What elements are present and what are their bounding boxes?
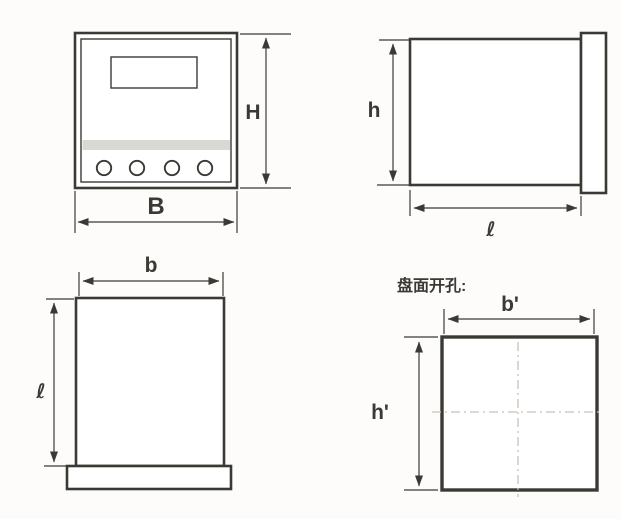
front-panel-band [83,140,231,150]
rear-view: b ℓ [35,254,231,489]
panel-button-3 [165,161,179,175]
panel-button-4 [198,161,212,175]
dim-label-l-rear: ℓ [35,379,45,403]
panel-button-1 [97,161,111,175]
dim-label-bprime: b' [501,293,519,316]
side-view: h ℓ [368,33,606,241]
dim-label-H: H [245,101,260,124]
dim-label-h: h [368,99,381,122]
panel-button-2 [130,161,144,175]
panel-meter-dimension-diagram: H B h ℓ b ℓ 盘面开孔: [0,0,621,519]
dim-label-hprime: h' [371,401,389,424]
side-view-body [410,39,581,185]
dim-label-b: b [145,254,158,277]
cutout-view: 盘面开孔: b' h' [371,276,603,497]
rear-view-flange [67,466,231,489]
side-view-flange [581,33,606,193]
dim-label-l-side: ℓ [485,217,495,241]
rear-view-body [76,298,224,466]
dim-label-B: B [147,193,164,220]
cutout-title: 盘面开孔: [397,276,466,295]
cutout-square [442,337,597,490]
front-view: H B [75,33,291,233]
